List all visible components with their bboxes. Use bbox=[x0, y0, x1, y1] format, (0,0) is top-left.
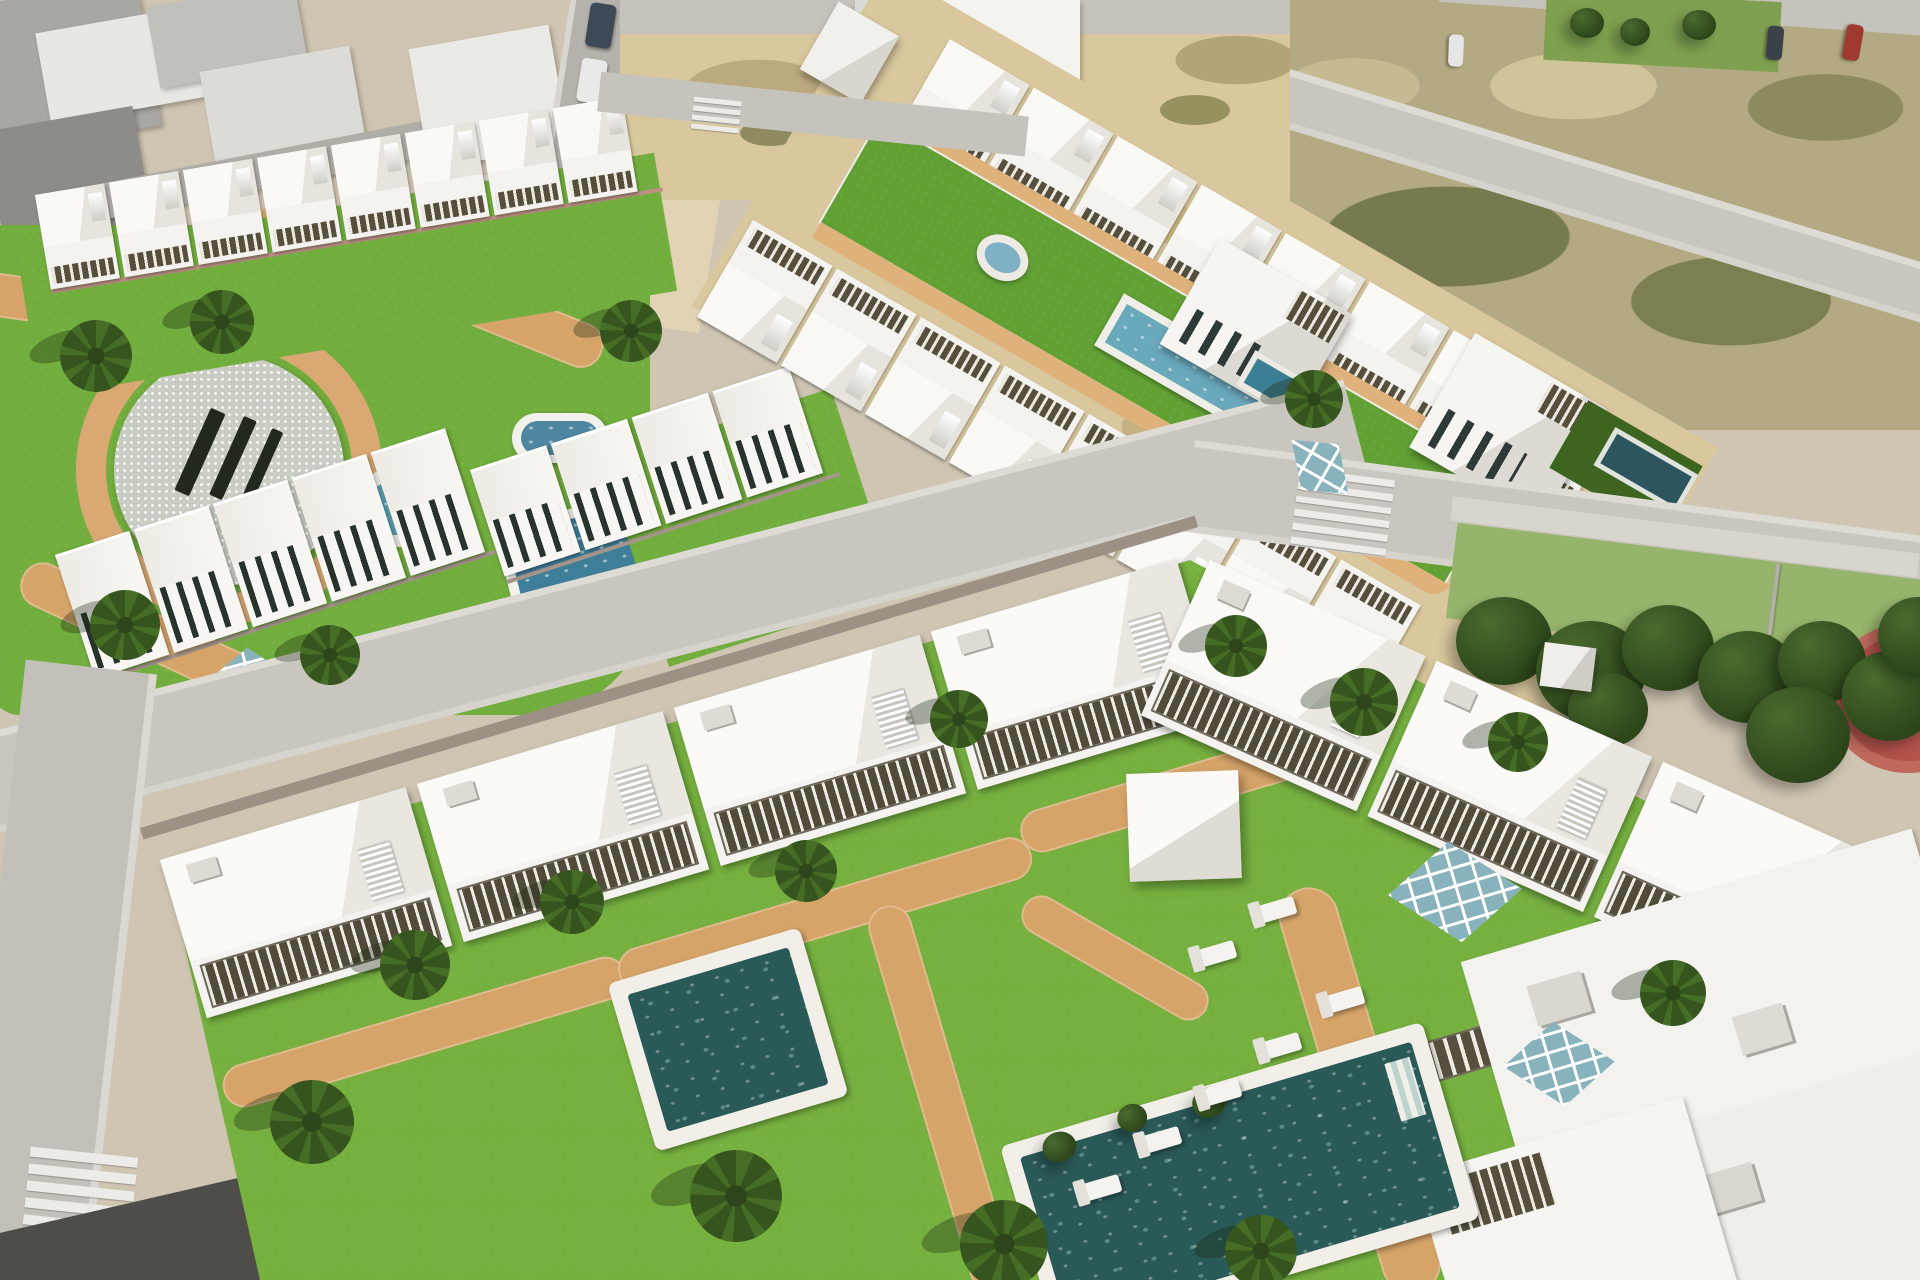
townhouse-unit bbox=[331, 134, 416, 240]
palm-tree bbox=[960, 1200, 1048, 1280]
palm-tree bbox=[60, 320, 132, 392]
palm-tree bbox=[1205, 615, 1267, 677]
sun-lounger bbox=[1193, 1079, 1242, 1109]
palm-tree bbox=[380, 930, 450, 1000]
round-fountain bbox=[968, 225, 1037, 290]
parked-car bbox=[584, 2, 617, 50]
palm-tree bbox=[90, 590, 160, 660]
palm-fronds bbox=[930, 690, 988, 748]
sun-lounger bbox=[1253, 1032, 1302, 1062]
palm-tree bbox=[1225, 1215, 1297, 1280]
palm-tree bbox=[540, 870, 604, 934]
palm-fronds bbox=[270, 1080, 354, 1164]
pergola-strip bbox=[495, 183, 559, 210]
palm-tree bbox=[1330, 668, 1398, 736]
verge-tree bbox=[1570, 8, 1604, 38]
pergola-strip bbox=[569, 170, 633, 197]
palm-tree bbox=[300, 625, 360, 685]
sun-lounger bbox=[1133, 1126, 1182, 1156]
palm-fronds bbox=[690, 1150, 782, 1242]
car-dark bbox=[1766, 25, 1785, 60]
palm-fronds bbox=[1285, 370, 1343, 428]
crosswalk-stripe bbox=[691, 123, 739, 133]
white-kiosk-cube bbox=[1126, 770, 1242, 882]
car-white bbox=[1448, 34, 1464, 67]
sun-lounger bbox=[1188, 940, 1237, 970]
townhouse-unit bbox=[109, 171, 194, 277]
palm-fronds bbox=[775, 840, 837, 902]
scrub-bush bbox=[1160, 95, 1230, 125]
townhouse-unit bbox=[183, 159, 268, 265]
palm-fronds bbox=[1488, 712, 1548, 772]
palm-tree bbox=[270, 1080, 354, 1164]
palm-fronds bbox=[190, 290, 254, 354]
lounger-backrest bbox=[1247, 901, 1266, 929]
palm-fronds bbox=[300, 625, 360, 685]
palm-fronds bbox=[1330, 668, 1398, 736]
sun-lounger bbox=[1248, 896, 1297, 926]
palm-fronds bbox=[600, 300, 662, 362]
palm-fronds bbox=[1205, 615, 1267, 677]
pergola-strip bbox=[199, 232, 263, 259]
glass-skylight bbox=[1273, 423, 1368, 511]
palm-fronds bbox=[960, 1200, 1048, 1280]
pergola-strip bbox=[421, 195, 485, 222]
palm-fronds bbox=[90, 590, 160, 660]
palm-fronds bbox=[540, 870, 604, 934]
sun-lounger bbox=[1073, 1174, 1122, 1204]
palm-fronds bbox=[60, 320, 132, 392]
pergola-strip bbox=[347, 208, 411, 235]
verge-tree bbox=[1682, 10, 1716, 40]
pergola-strip bbox=[51, 257, 115, 284]
sun-lounger bbox=[1316, 986, 1365, 1016]
lounger-backrest bbox=[1132, 1131, 1151, 1159]
palm-tree bbox=[930, 690, 988, 748]
townhouse-unit bbox=[479, 109, 564, 215]
townhouse-unit bbox=[35, 183, 120, 289]
pergola-strip bbox=[125, 245, 189, 272]
lounger-backrest bbox=[1315, 991, 1334, 1019]
lounger-backrest bbox=[1072, 1179, 1091, 1207]
crosswalk-top bbox=[690, 97, 742, 138]
small-pool-water bbox=[627, 947, 829, 1132]
pergola-strip bbox=[273, 220, 337, 247]
crosswalk-stripe bbox=[692, 114, 740, 124]
lounger-backrest bbox=[1192, 1084, 1211, 1112]
aerial-development-render: Aerial architectural render of a new-bui… bbox=[0, 0, 1920, 1280]
palm-fronds bbox=[380, 930, 450, 1000]
lounger-backrest bbox=[1252, 1037, 1271, 1065]
townhouse-unit bbox=[257, 146, 342, 252]
palm-tree bbox=[775, 840, 837, 902]
palm-tree bbox=[1285, 370, 1343, 428]
palm-fronds bbox=[1225, 1215, 1297, 1280]
palm-fronds bbox=[1640, 960, 1706, 1026]
verge-tree bbox=[1620, 18, 1650, 46]
palm-tree bbox=[1488, 712, 1548, 772]
lounger-backrest bbox=[1187, 945, 1206, 973]
rooftop-chimney bbox=[1732, 1003, 1793, 1056]
crosswalk-stripe bbox=[693, 106, 741, 116]
townhouse-unit bbox=[405, 122, 490, 228]
palm-tree bbox=[600, 300, 662, 362]
rooftop-chimney bbox=[1527, 970, 1593, 1026]
palm-tree bbox=[1640, 960, 1706, 1026]
palm-tree bbox=[190, 290, 254, 354]
palm-tree bbox=[690, 1150, 782, 1242]
sun-lounger-group bbox=[1050, 880, 1450, 1220]
